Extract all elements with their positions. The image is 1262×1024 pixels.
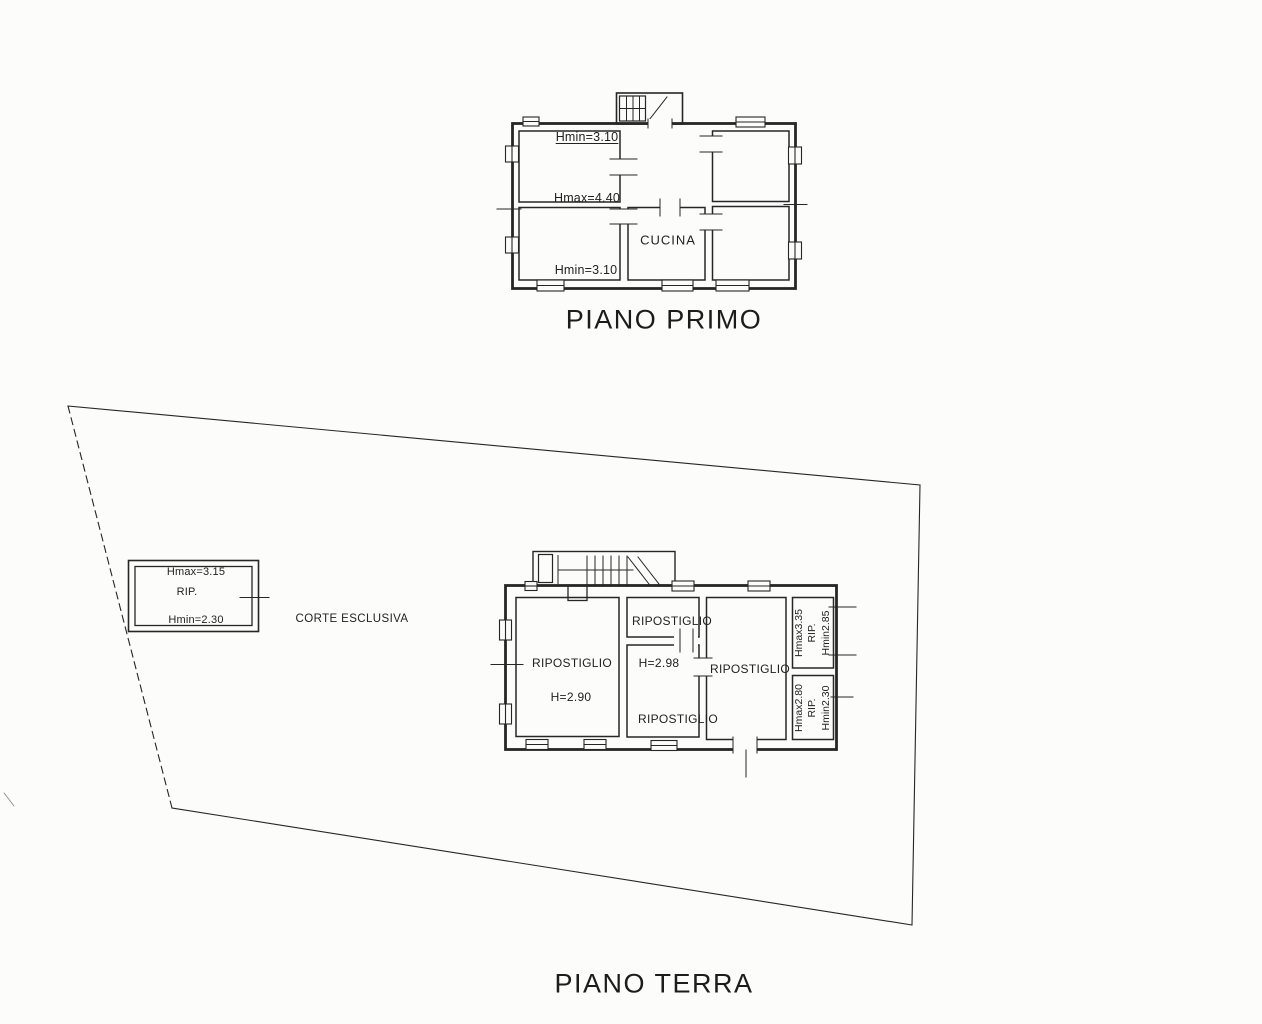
pp-divider-height-label: Hmax=4.40	[554, 191, 620, 205]
piano-primo-plan	[497, 93, 807, 291]
pt-door-mid	[674, 629, 698, 652]
pt-staircase	[533, 552, 675, 601]
scan-artifact-dash	[4, 793, 14, 806]
pt-door-right-bottom	[733, 737, 757, 777]
pp-room-top-right	[713, 131, 790, 202]
pt-mid-room-height-label: H=2.98	[639, 656, 680, 670]
pt-small-top-name: RIP.	[806, 601, 819, 665]
pt-right-room-label: RIPOSTIGLIO	[710, 662, 790, 676]
pp-top-left-height-label: Hmin=3.10	[556, 130, 619, 144]
plan-linework	[0, 0, 1262, 1024]
pt-small-bottom-name: RIP.	[806, 678, 819, 738]
pt-left-room-height-label: H=2.90	[551, 690, 592, 704]
annex-name-label: RIP.	[177, 586, 198, 598]
annex-hmin-label: Hmin=2.30	[168, 614, 223, 626]
pp-kitchen-label: CUCINA	[640, 233, 696, 248]
pt-small-top-hmax: Hmax3.35	[793, 601, 806, 665]
parcel-boundary-dashed	[68, 406, 172, 808]
piano-terra-title: PIANO TERRA	[554, 969, 753, 1000]
pp-bottom-left-height-label: Hmin=3.10	[555, 263, 618, 277]
pp-stair-treads	[620, 96, 646, 121]
pp-stair-diagonal	[649, 97, 667, 120]
pt-mid-top-room-label: RIPOSTIGLIO	[632, 614, 712, 628]
pt-small-top-hmin: Hmin2.85	[820, 601, 833, 665]
pp-door-corridor-right-bottom	[700, 214, 722, 230]
pt-left-room-label: RIPOSTIGLIO	[532, 656, 612, 670]
pp-room-bottom-right	[713, 207, 790, 281]
pp-door-corridor-left-top	[610, 159, 637, 175]
pt-small-bottom-hmax: Hmax2.80	[793, 678, 806, 738]
pp-door-corridor-right-top	[700, 136, 722, 152]
pt-small-top-room-label: Hmax3.35 RIP. Hmin2.85	[792, 601, 834, 665]
pp-door-corridor-left-bottom	[610, 209, 637, 224]
pp-windows	[506, 117, 802, 291]
pt-small-bottom-room-label: Hmax2.80 RIP. Hmin2.30	[792, 678, 834, 738]
pp-stair-opening	[648, 119, 672, 128]
piano-primo-title: PIANO PRIMO	[566, 305, 763, 336]
pt-mid-room-label: RIPOSTIGLIO	[638, 712, 718, 726]
courtyard-label: CORTE ESCLUSIVA	[296, 613, 409, 625]
floorplan-sheet: Hmin=3.10 Hmax=4.40 Hmin=3.10 CUCINA PIA…	[0, 0, 1262, 1024]
pt-small-bottom-hmin: Hmin2.30	[820, 678, 833, 738]
pp-door-kitchen	[660, 199, 680, 216]
annex-hmax-label: Hmax=3.15	[167, 566, 225, 578]
